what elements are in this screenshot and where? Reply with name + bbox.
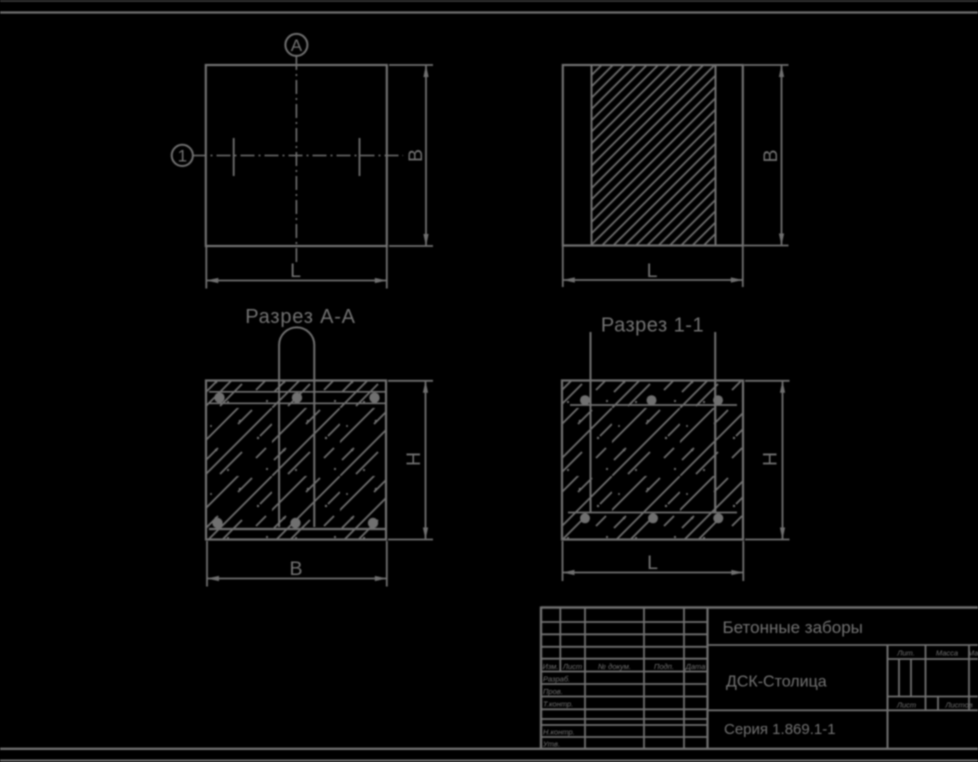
- svg-text:Дата: Дата: [685, 662, 706, 671]
- svg-text:L: L: [647, 552, 658, 574]
- svg-text:Лист: Лист: [896, 701, 916, 710]
- svg-text:ДСК-Столица: ДСК-Столица: [726, 674, 827, 691]
- svg-text:В: В: [405, 149, 427, 162]
- svg-text:Разраб.: Разраб.: [543, 675, 570, 684]
- svg-text:Лист: Лист: [562, 662, 582, 671]
- svg-text:Листов: Листов: [944, 701, 972, 710]
- svg-text:Т.контр.: Т.контр.: [543, 700, 573, 709]
- svg-text:Утв.: Утв.: [542, 740, 560, 749]
- svg-text:Изм.: Изм.: [543, 662, 559, 671]
- svg-text:В: В: [289, 558, 302, 580]
- svg-text:Лит.: Лит.: [896, 649, 915, 658]
- svg-text:Разрез 1-1: Разрез 1-1: [601, 315, 704, 337]
- svg-text:Бетонные заборы: Бетонные заборы: [723, 618, 863, 637]
- svg-text:Н: Н: [760, 452, 782, 466]
- svg-text:Разрез А-А: Разрез А-А: [245, 306, 356, 328]
- svg-text:L: L: [290, 260, 301, 282]
- svg-text:Пров.: Пров.: [543, 687, 563, 696]
- svg-text:Подп.: Подп.: [654, 662, 674, 671]
- svg-text:1: 1: [178, 146, 187, 165]
- svg-text:В: В: [760, 149, 782, 162]
- svg-text:А: А: [291, 36, 303, 55]
- svg-text:L: L: [647, 260, 658, 282]
- svg-text:Серия 1.869.1-1: Серия 1.869.1-1: [724, 721, 836, 738]
- svg-text:Мас: Мас: [968, 649, 978, 658]
- svg-text:Н: Н: [403, 452, 425, 466]
- svg-text:Н.контр.: Н.контр.: [543, 728, 575, 737]
- svg-text:№ докум.: № докум.: [598, 662, 631, 671]
- svg-text:Масса: Масса: [936, 649, 958, 658]
